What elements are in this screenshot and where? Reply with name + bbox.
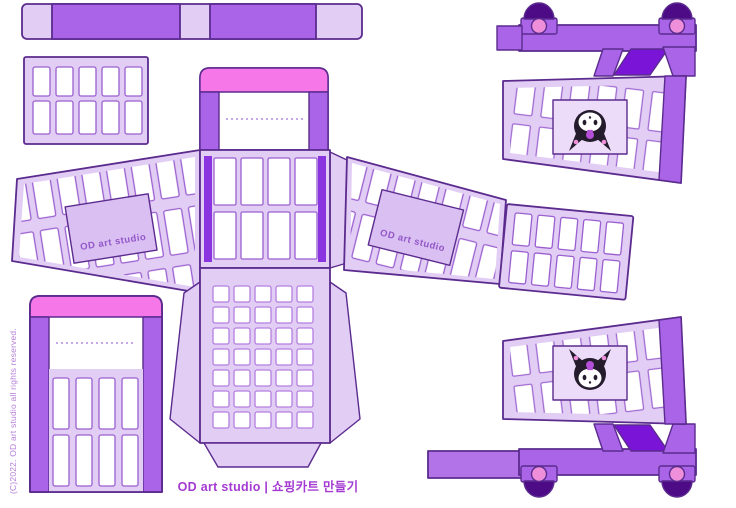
bottom-glue-flap: [204, 443, 321, 467]
cell-grid: [213, 286, 313, 428]
handle-piece: [200, 68, 328, 150]
od-art-studio-label-left: OD art studio: [65, 194, 157, 263]
copyright-text: (C)2022. OD art studio all rights reserv…: [8, 328, 18, 494]
fold-flap: [170, 282, 200, 443]
cart-side-bottom-piece: [428, 317, 696, 497]
template-drawing: OD art studio OD art studio: [0, 0, 736, 508]
chassis-bar-end: [497, 26, 522, 50]
back-panel-piece: [30, 296, 162, 492]
left-wing-panel: OD art studio: [12, 150, 200, 293]
chassis-extension-bar: [428, 451, 522, 478]
footer-credit: OD art studio | 쇼핑카트 만들기: [178, 479, 359, 494]
papercraft-sheet: OD art studio OD art studio: [0, 0, 736, 508]
handle-grip-band: [200, 68, 328, 92]
fold-flap: [330, 282, 360, 443]
handle-bar-strip-piece: [22, 4, 362, 39]
right-wing-panel: OD art studio: [330, 152, 506, 284]
basket-front-panel: [200, 150, 330, 268]
vent-panel-top-left: [24, 57, 148, 144]
far-right-wing-panel: [499, 204, 633, 300]
cart-side-top-piece: [497, 3, 696, 183]
handle-grip-band: [30, 296, 162, 317]
basket-floor-panel: [170, 268, 360, 467]
